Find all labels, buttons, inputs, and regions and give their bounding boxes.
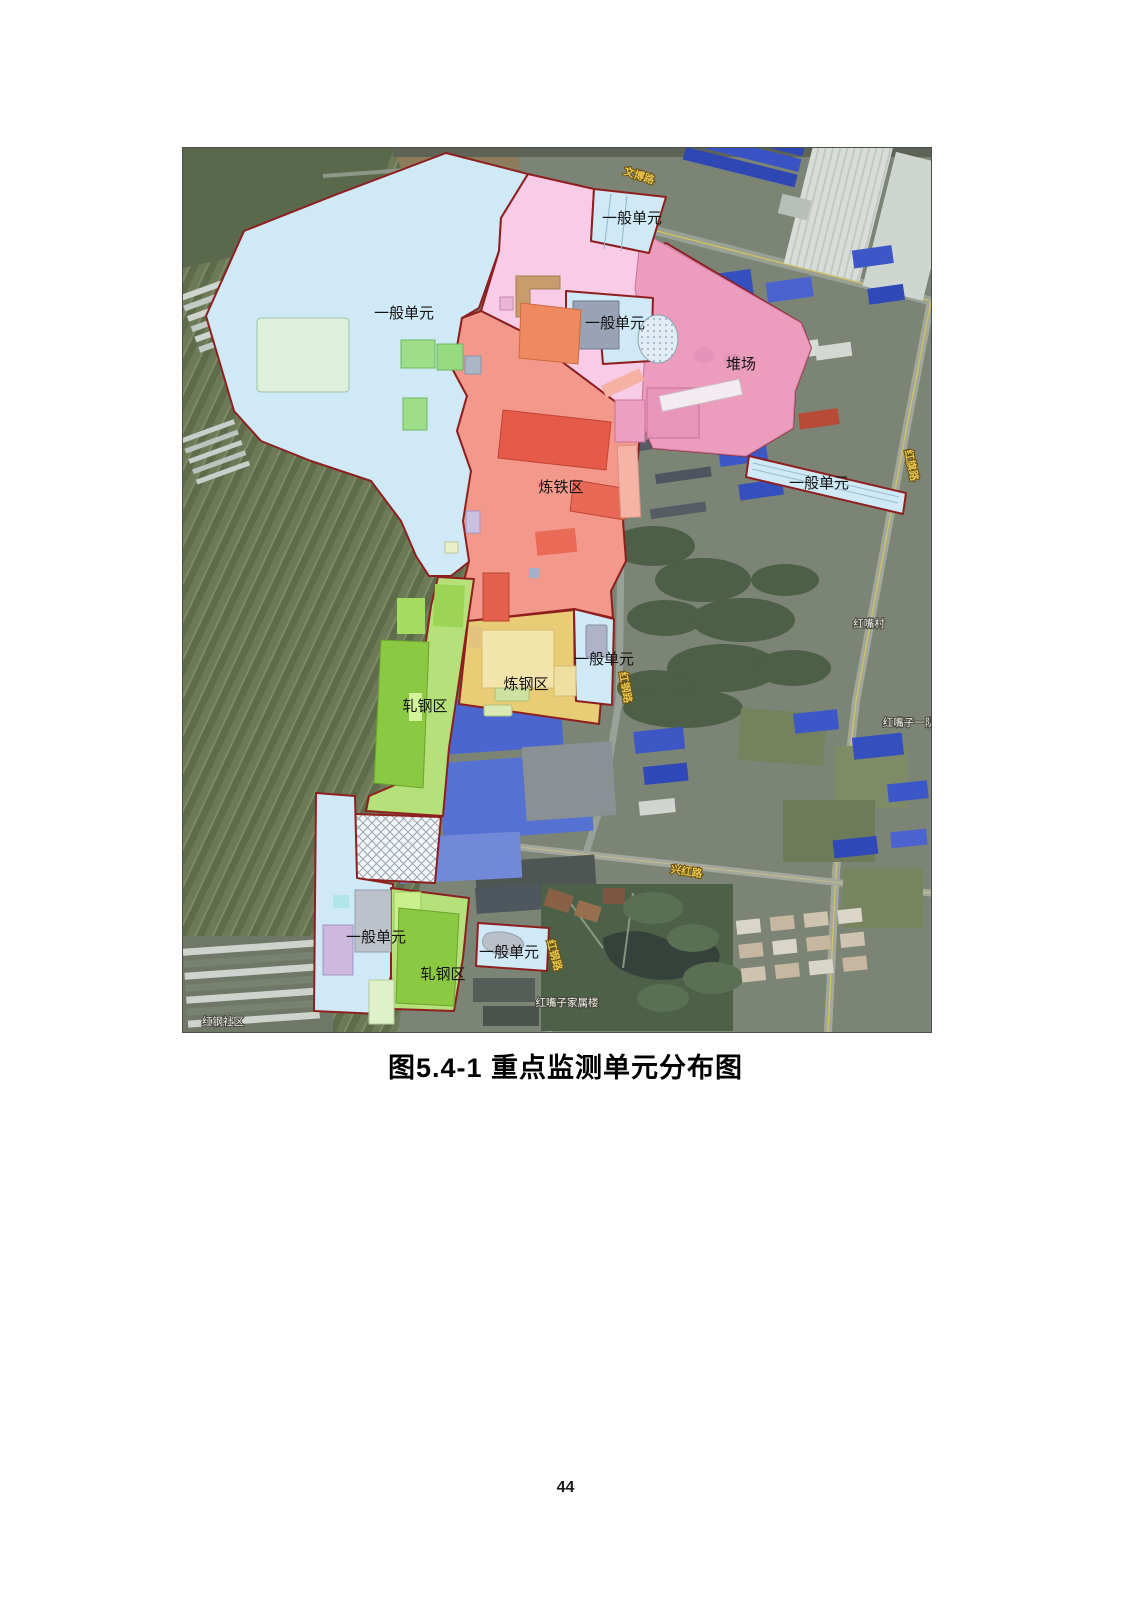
label-rolling-upper: 轧钢区 [402,698,447,715]
label-rolling-lower: 轧钢区 [420,966,465,983]
document-page: 一般单元 一般单元 一般单元 堆场 一般单元 炼铁区 一般单元 炼钢区 轧钢区 … [0,0,1131,1600]
label-general-center: 一般单元 [574,651,634,668]
label-general-top: 一般单元 [602,210,662,227]
place-label-team: 红嘴子一队 [883,716,931,729]
label-general-main: 一般单元 [374,305,434,322]
label-general-mid: 一般单元 [585,315,645,332]
figure-caption: 图5.4-1 重点监测单元分布图 [0,1046,1131,1085]
place-label-village: 红嘴村 [853,617,885,630]
page-number: 44 [0,1479,1131,1497]
label-general-bottom-left: 一般单元 [346,929,406,946]
zone-hatched [353,814,441,883]
monitoring-units-map: 一般单元 一般单元 一般单元 堆场 一般单元 炼铁区 一般单元 炼钢区 轧钢区 … [182,147,932,1033]
label-general-bottom-right: 一般单元 [479,944,539,961]
label-yard: 堆场 [726,356,756,373]
label-general-right: 一般单元 [789,475,849,492]
label-iron: 炼铁区 [538,479,583,496]
map-figure: 一般单元 一般单元 一般单元 堆场 一般单元 炼铁区 一般单元 炼钢区 轧钢区 … [183,148,931,1032]
place-label-dormitory: 红嘴子家属楼 [536,996,599,1009]
label-steel: 炼钢区 [503,676,548,693]
place-label-community: 红钢社区 [202,1015,244,1028]
